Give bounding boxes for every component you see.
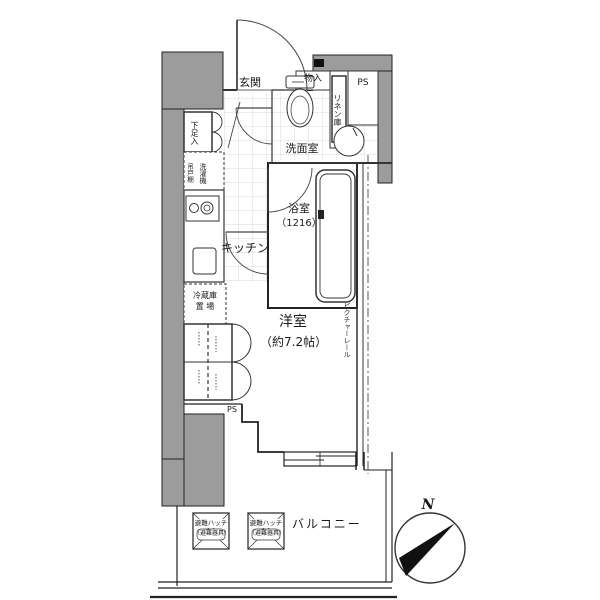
bathroom-label: 浴室 bbox=[281, 203, 317, 216]
hatch-1-sublabel: （避難器具） bbox=[194, 531, 228, 538]
kitchen-counter bbox=[184, 190, 224, 282]
pipe-space-lower-label: PS bbox=[224, 405, 240, 414]
linen-closet-label: リネン庫 bbox=[333, 79, 341, 141]
main-room-label: 洋室 bbox=[275, 314, 311, 330]
hall-storage-label: 物入 bbox=[296, 74, 330, 84]
laundry-cabinet-label: 吊戸棚 bbox=[186, 158, 193, 188]
stove-icon bbox=[186, 196, 219, 221]
fridge-space-label-line2: 置 場 bbox=[184, 302, 226, 311]
compass-icon bbox=[395, 513, 465, 583]
pipe-space-upper-label: PS bbox=[348, 78, 378, 88]
picture-rail-label: ピクチャーレール bbox=[343, 296, 350, 364]
washroom-label: 洗面室 bbox=[280, 143, 324, 156]
floorplan-drawing bbox=[0, 0, 600, 600]
washer-space-label: 洗濯機 bbox=[199, 156, 206, 190]
door-stop bbox=[314, 59, 324, 67]
shoe-cabinet-label: 下足入 bbox=[190, 116, 198, 150]
floorplan-canvas: 玄関 物入 リネン庫 PS 下足入 洗面室 吊戸棚 洗濯機 キッチン 冷蔵庫 置… bbox=[0, 0, 600, 600]
balcony-label: バルコニー bbox=[292, 518, 358, 532]
bathtub-icon bbox=[316, 170, 355, 302]
compass-north-label: N bbox=[419, 497, 437, 513]
fridge-space-label-line1: 冷蔵庫 bbox=[184, 291, 226, 300]
hatch-1-label: 避難ハッチ bbox=[194, 520, 228, 527]
main-room-size-label: （約7.2帖） bbox=[260, 336, 326, 350]
closet-box bbox=[184, 324, 251, 400]
kitchen-label: キッチン bbox=[220, 242, 270, 256]
hatch-2-label: 避難ハッチ bbox=[249, 520, 283, 527]
entrance-label: 玄関 bbox=[232, 77, 268, 90]
bathroom-size-label: （1216） bbox=[274, 218, 324, 230]
hatch-2-sublabel: （避難器具） bbox=[249, 531, 283, 538]
